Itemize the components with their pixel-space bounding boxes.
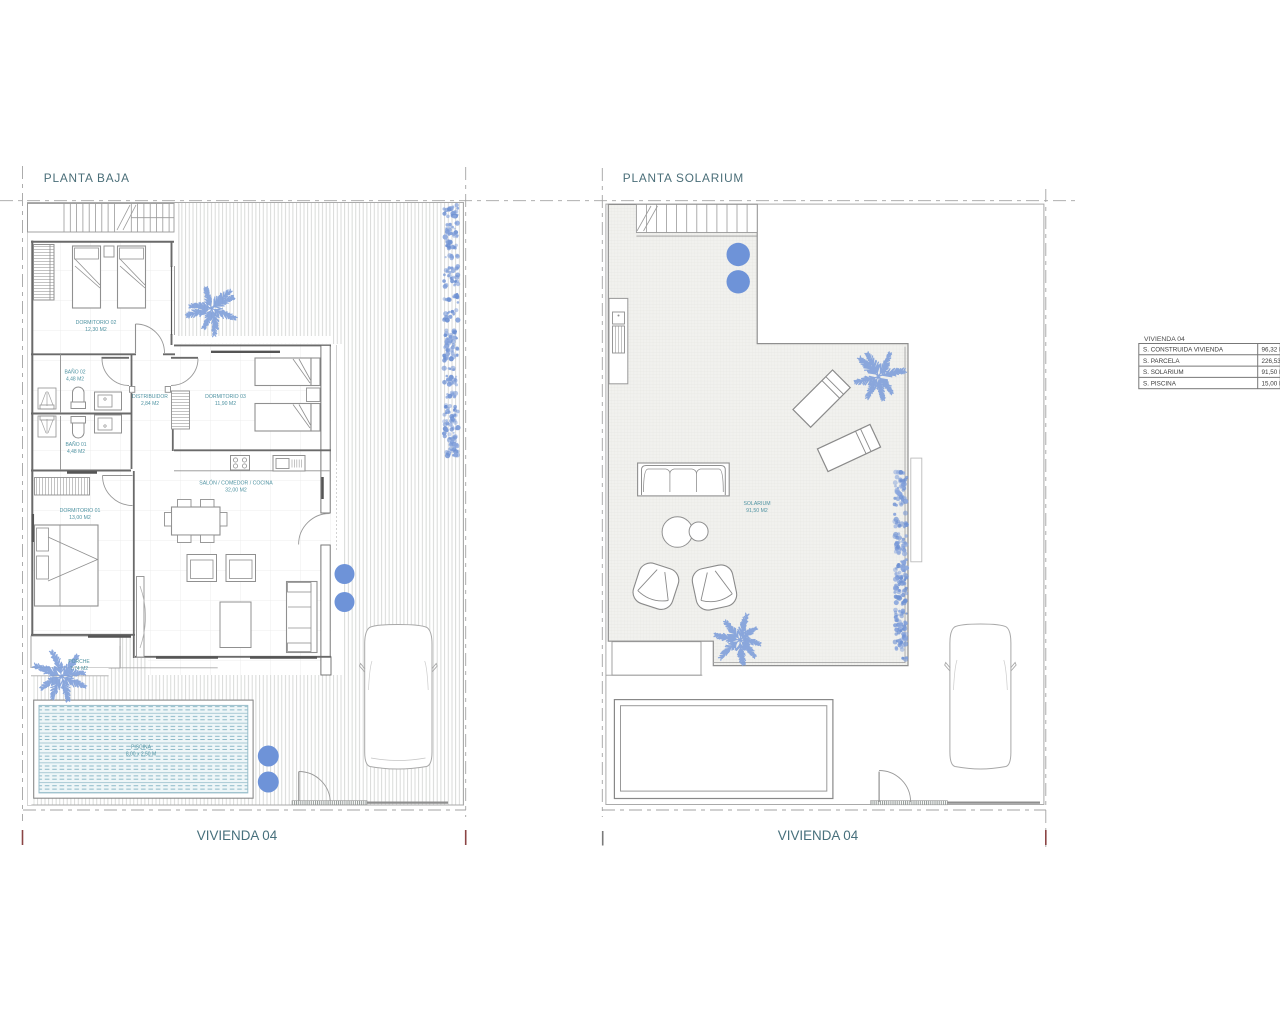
svg-text:PLANTA SOLARIUM: PLANTA SOLARIUM (623, 171, 744, 185)
svg-text:8,00 x 2,50 M: 8,00 x 2,50 M (126, 752, 156, 758)
svg-text:VIVIENDA 04: VIVIENDA 04 (778, 828, 859, 843)
svg-text:13,00 M2: 13,00 M2 (69, 515, 91, 521)
svg-text:S. PISCINA: S. PISCINA (1143, 380, 1177, 387)
svg-text:PORCHE: PORCHE (68, 659, 90, 665)
svg-text:S. SOLARIUM: S. SOLARIUM (1143, 369, 1184, 376)
svg-text:15,00 M: 15,00 M (1262, 380, 1280, 387)
svg-text:2,84 M2: 2,84 M2 (141, 401, 159, 407)
svg-text:91,50 M: 91,50 M (1262, 369, 1280, 376)
svg-text:SALÓN / COMEDOR / COCINA: SALÓN / COMEDOR / COCINA (199, 480, 273, 487)
svg-text:S. CONSTRUIDA VIVIENDA: S. CONSTRUIDA VIVIENDA (1143, 347, 1224, 354)
svg-text:DISTRIBUIDOR: DISTRIBUIDOR (132, 394, 168, 400)
svg-text:BAÑO 02: BAÑO 02 (64, 369, 85, 376)
svg-text:4,48 M2: 4,48 M2 (67, 449, 85, 455)
svg-text:DORMITORIO 02: DORMITORIO 02 (76, 320, 117, 326)
svg-text:7,74 M2: 7,74 M2 (70, 666, 88, 672)
svg-text:BAÑO 01: BAÑO 01 (65, 441, 86, 448)
svg-text:PLANTA BAJA: PLANTA BAJA (44, 171, 130, 185)
svg-text:4,48 M2: 4,48 M2 (66, 377, 84, 383)
svg-text:226,53: 226,53 (1262, 358, 1280, 365)
svg-text:91,50 M2: 91,50 M2 (746, 508, 768, 514)
svg-text:DORMITORIO 03: DORMITORIO 03 (205, 394, 246, 400)
svg-text:12,30 M2: 12,30 M2 (85, 327, 107, 333)
svg-text:VIVIENDA 04: VIVIENDA 04 (197, 828, 278, 843)
svg-text:SOLARIUM: SOLARIUM (743, 501, 770, 507)
svg-text:32,00 M2: 32,00 M2 (225, 488, 247, 494)
svg-text:PISCINA: PISCINA (131, 745, 152, 751)
svg-text:DORMITORIO 01: DORMITORIO 01 (60, 508, 101, 514)
svg-text:S. PARCELA: S. PARCELA (1143, 358, 1180, 365)
svg-text:VIVIENDA 04: VIVIENDA 04 (1144, 336, 1185, 343)
svg-text:11,90 M2: 11,90 M2 (215, 401, 236, 407)
svg-text:96,32 M: 96,32 M (1262, 347, 1280, 354)
